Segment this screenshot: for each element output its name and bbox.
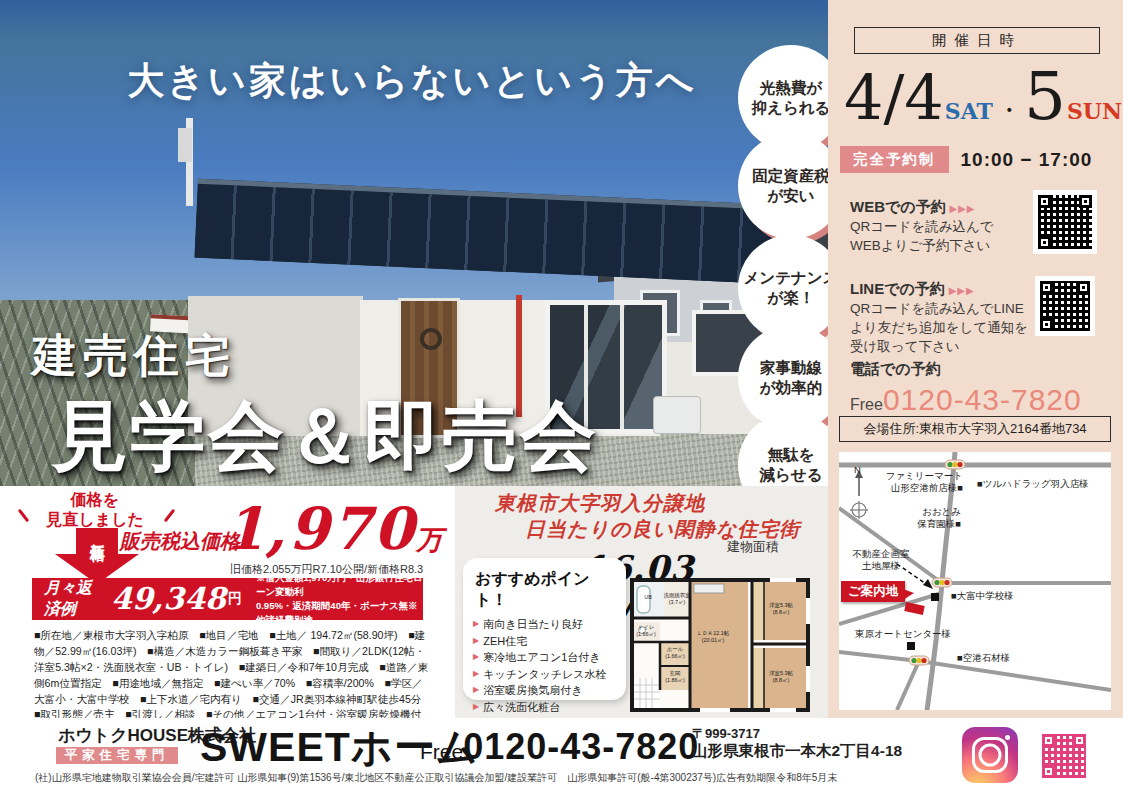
loan-note: ※借入金額1,970万円・山形銀行住宅ローン変動利 0.95%・返済期間40年・… [256, 571, 423, 626]
bullet-icon: ▶ [473, 684, 479, 699]
monthly-label: 月々返済例 [44, 578, 105, 620]
event-header: 開催日時 [854, 27, 1100, 54]
map-landmark-autocenter: 東原オートセンター様 [855, 628, 951, 640]
price-section: 価格を 見直しました 新価格 販売税込価格 1,970万円 旧価格2,055万円… [0, 486, 455, 718]
recommend-points-box: おすすめポイント！ ▶南向き日当たり良好 ▶ZEH住宅 ▶寒冷地エアコン1台付き… [463, 558, 626, 700]
point-item: ▶寒冷地エアコン1台付き [473, 649, 616, 666]
headline: 大きい家はいらないという方へ [92, 56, 732, 106]
new-price-label: 新価格 [88, 531, 107, 537]
arrow-icons: ▶▶▶ [949, 203, 975, 214]
point-item: ▶キッチンタッチレス水栓 [473, 666, 616, 683]
fp-room1-label: 洋室5.3帖 (8.8㎡) [759, 603, 804, 616]
event-dates: 4/4SAT・5SUN [844, 64, 1123, 130]
bullet-icon: ▶ [473, 618, 479, 633]
date-1: 4/4 [844, 67, 944, 129]
arrow-icons: ▶▶▶ [949, 285, 975, 296]
solar-roof [195, 179, 788, 285]
date-2: 5 [1024, 64, 1066, 130]
free-dial-label: Free [420, 740, 463, 764]
event-panel: 開催日時 4/4SAT・5SUN 完全予約制 10:00 − 17:00 WEB… [828, 0, 1123, 718]
day-sat: SAT [945, 98, 993, 124]
bullet-icon: ▶ [473, 651, 479, 666]
line-body: QRコードを読み込んでLINE より友だち追加をして通知を 受け取って下さい [850, 300, 1028, 357]
bullet-icon: ▶ [473, 668, 479, 683]
map-landmark-sekizai: ■空港石材様 [957, 652, 1010, 664]
middle-section: 東根市大字羽入分譲地 日当たりの良い閑静な住宅街 建物面積 16.03坪/2LD… [455, 486, 828, 718]
web-reservation: WEBでの予約 ▶▶▶ QRコードを読み込んで WEBよりご予約下さい [850, 196, 994, 256]
fp-ldk-label: ＬＤＫ12.1帖 (20.01㎡) [682, 631, 745, 644]
phone-number: 0120-43-7820 [463, 726, 699, 768]
catch-line-1: 東根市大字羽入分譲地 [495, 490, 705, 517]
flyer: 大きい家はいらないという方へ 建売住宅 見学会＆即売会 光熱費が 抑えられる 固… [0, 0, 1123, 794]
point-item: ▶浴室暖房換気扇付き [473, 682, 616, 699]
point-item: ▶南向き日当たり良好 [473, 616, 616, 633]
access-map: N ファミリーマート 山形空港前店様■ ■ツルハドラッグ羽入店様 おおとみ 保育… [839, 452, 1111, 710]
day-sun: SUN [1067, 98, 1122, 124]
bullet-icon: ▶ [473, 635, 479, 650]
photo-title-small: 建売住宅 [32, 326, 236, 386]
legal-text: (社)山形県宅地建物取引業協会会員/宅建許可 山形県知事(9)第1536号/東北… [35, 771, 837, 785]
map-compass-n: N [854, 464, 861, 476]
tel-number: 0120-43-7820 [883, 379, 1082, 421]
point-item: ▶広々洗面化粧台 [473, 699, 616, 716]
web-title: WEBでの予約 [850, 198, 946, 215]
map-landmark-ootomi: おおとみ 保育園様■ [903, 506, 961, 530]
monthly-value: 49,348 [111, 584, 226, 614]
specialty-badge: 平家住宅専門 [56, 747, 178, 764]
company-address: 山形県東根市一本木2丁目4-18 [692, 741, 902, 762]
photo-title-large: 見学会＆即売会 [52, 386, 598, 486]
price-revised-label: 価格を 見直しました [20, 490, 170, 530]
reservation-row: 完全予約制 10:00 − 17:00 [840, 146, 1092, 173]
point-item: ▶ZEH住宅 [473, 633, 616, 650]
web-qr-code [1033, 190, 1097, 254]
reservation-badge: 完全予約制 [840, 146, 949, 173]
tel-reservation: 電話での予約 Free 0120-43-7820 [850, 358, 1082, 421]
line-qr-code [1035, 276, 1095, 336]
tel-title: 電話での予約 [850, 358, 1082, 379]
footer-phone: Free 0120-43-7820 [420, 726, 699, 768]
date-separator: ・ [996, 93, 1022, 128]
floor-plan: ＬＤＫ12.1帖 (20.01㎡) 洋室5.3帖 (8.8㎡) 洋室5.3帖 (… [630, 578, 810, 712]
fp-senmen-label: 洗面脱衣室 (3.7㎡) [662, 593, 693, 606]
antenna [178, 128, 192, 162]
web-body: QRコードを読み込んで WEBよりご予約下さい [850, 218, 994, 256]
line-reservation: LINEでの予約 ▶▶▶ QRコードを読み込んでLINE より友だち追加をして通… [850, 278, 1028, 357]
fp-ub-label: UB [635, 594, 660, 600]
line-title: LINEでの予約 [850, 280, 945, 297]
bullet-icon: ▶ [473, 701, 479, 716]
ac-unit [653, 396, 701, 434]
map-building-marker [907, 642, 915, 650]
event-time: 10:00 − 17:00 [961, 149, 1093, 171]
fp-toilet-label: トイレ (1.66㎡) [633, 625, 658, 638]
fp-room2-label: 洋室5.3帖 (8.8㎡) [759, 671, 804, 684]
instagram-qr-code [1037, 729, 1091, 783]
map-landmark-tsuruha: ■ツルハドラッグ羽入店様 [977, 478, 1089, 490]
fp-hall-label: ホール (1.66㎡) [660, 647, 691, 660]
map-building-marker [931, 593, 939, 601]
monthly-unit: 円 [228, 590, 242, 608]
monthly-payment-band: 月々返済例 49,348 円 ※借入金額1,970万円・山形銀行住宅ローン変動利… [32, 578, 423, 620]
fp-genkan-label: 玄関 (1.86㎡) [660, 671, 691, 684]
points-title: おすすめポイント！ [475, 569, 616, 611]
map-guide-label: ご案内地 [841, 581, 905, 602]
door-wreath [420, 328, 442, 350]
venue-address: 会場住所:東根市大字羽入2164番地734 [839, 416, 1111, 442]
house-photo: 大きい家はいらないという方へ 建売住宅 見学会＆即売会 [0, 0, 828, 486]
tel-free-label: Free [850, 394, 883, 416]
map-landmark-familymart: ファミリーマート 山形空港前店様■ [877, 470, 963, 494]
footer-bar: ホウトクHOUSE株式会社 平家住宅専門 SWEETホーム Free 0120-… [0, 718, 1123, 794]
map-landmark-fudosan: 不動産企画室 土地屋様 [845, 548, 917, 572]
instagram-icon [962, 727, 1018, 783]
price-label: 販売税込価格 [120, 528, 240, 555]
map-landmark-chugakko: ■大富中学校様 [951, 590, 1014, 602]
